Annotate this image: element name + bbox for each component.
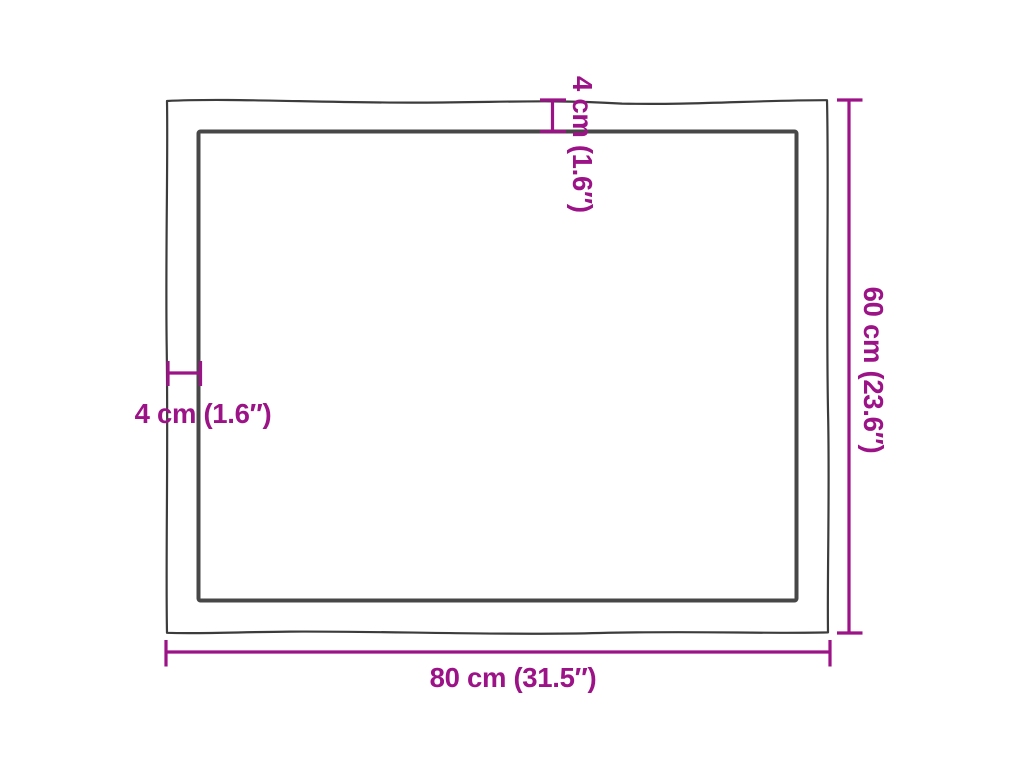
height-dimension-label: 60 cm (23.6″): [858, 287, 889, 454]
tabletop-inner-edge: [199, 132, 797, 601]
dimension-lines: [166, 100, 863, 667]
width-dimension-label: 80 cm (31.5″): [430, 662, 597, 693]
dimension-diagram-canvas: 4 cm (1.6″) 4 cm (1.6″) 60 cm (23.6″) 80…: [0, 0, 1024, 768]
edge-thickness-left-label: 4 cm (1.6″): [135, 398, 272, 429]
edge-thickness-top-label: 4 cm (1.6″): [567, 76, 598, 213]
product-dimension-diagram: 4 cm (1.6″) 4 cm (1.6″) 60 cm (23.6″) 80…: [0, 0, 1024, 768]
tabletop-outer-edge: [166, 100, 828, 634]
dim-marker-top-thickness: [540, 100, 566, 132]
dim-marker-left-thickness: [168, 361, 201, 386]
